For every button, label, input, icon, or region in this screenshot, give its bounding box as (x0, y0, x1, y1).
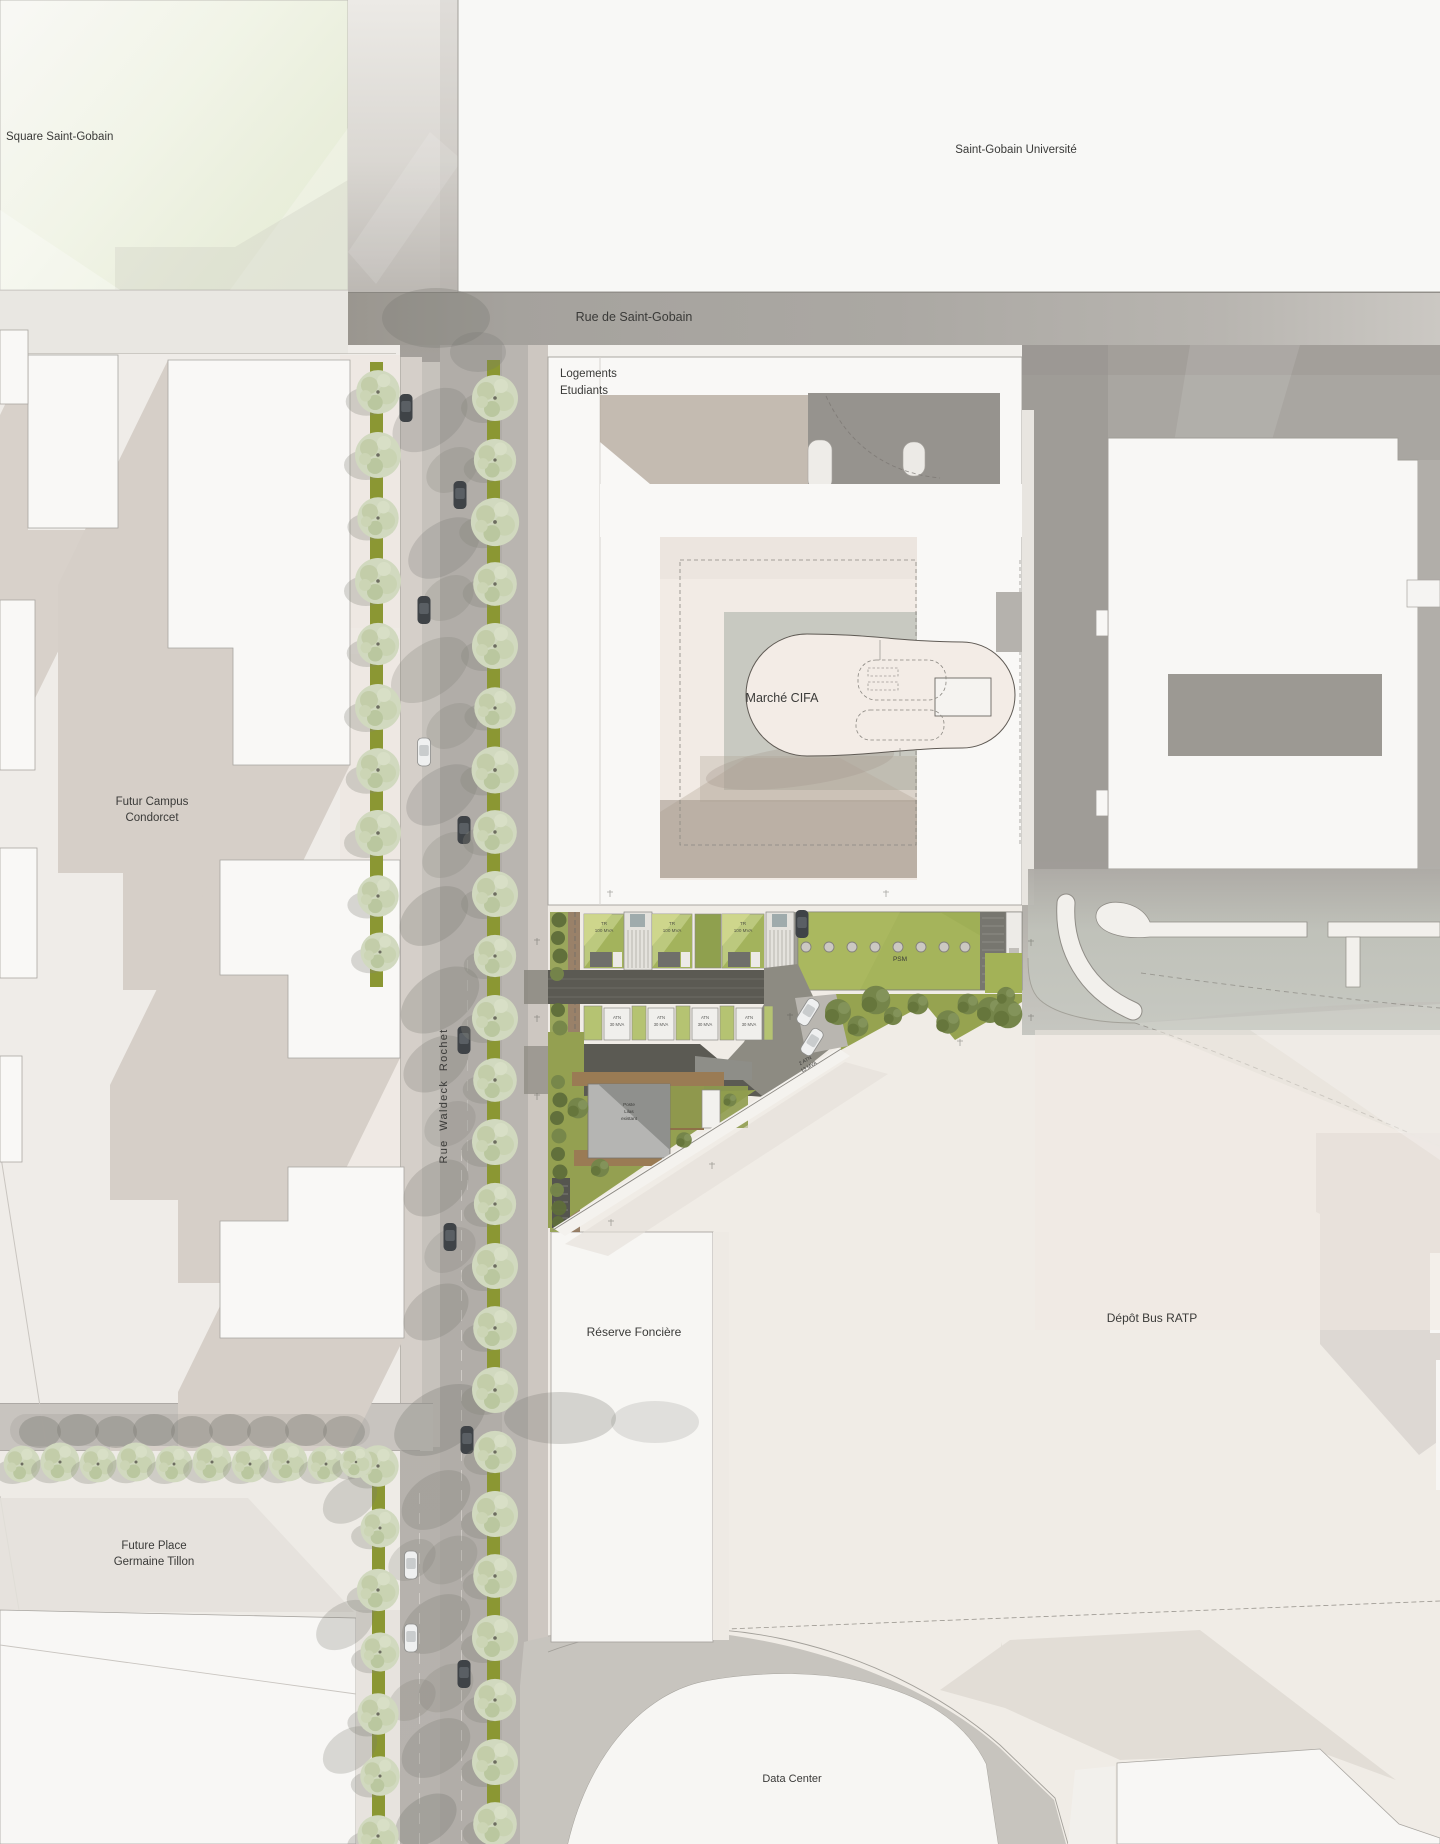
svg-text:30 MVA: 30 MVA (610, 1022, 625, 1027)
svg-text:TR: TR (740, 921, 747, 926)
svg-text:100 MVA: 100 MVA (663, 928, 682, 933)
svg-text:ATN: ATN (613, 1015, 621, 1020)
svg-text:Condorcet: Condorcet (125, 812, 179, 824)
svg-text:100 MVA: 100 MVA (595, 928, 614, 933)
svg-text:ATN: ATN (745, 1015, 753, 1020)
svg-text:Lilas: Lilas (624, 1109, 634, 1114)
svg-text:Rue Waldeck Rochet: Rue Waldeck Rochet (438, 1028, 450, 1163)
svg-text:Etudiants: Etudiants (560, 385, 608, 397)
svg-text:TR: TR (669, 921, 676, 926)
svg-text:existant: existant (621, 1116, 638, 1121)
svg-text:30 MVA: 30 MVA (654, 1022, 669, 1027)
svg-text:Dépôt Bus RATP: Dépôt Bus RATP (1107, 1311, 1197, 1325)
svg-text:Square Saint-Gobain: Square Saint-Gobain (6, 131, 113, 143)
svg-text:Poste: Poste (623, 1102, 635, 1107)
svg-text:Logements: Logements (560, 368, 617, 380)
svg-text:Futur Campus: Futur Campus (116, 796, 189, 808)
svg-text:Marché CIFA: Marché CIFA (746, 691, 820, 705)
svg-text:Rue de Saint-Gobain: Rue de Saint-Gobain (576, 310, 693, 324)
svg-text:30 MVA: 30 MVA (698, 1022, 713, 1027)
svg-text:ATN: ATN (657, 1015, 665, 1020)
svg-text:Réserve Foncière: Réserve Foncière (587, 1325, 682, 1339)
svg-text:30 MVA: 30 MVA (742, 1022, 757, 1027)
svg-text:Saint-Gobain Université: Saint-Gobain Université (955, 144, 1076, 156)
svg-text:PSM: PSM (893, 956, 907, 963)
svg-text:100 MVA: 100 MVA (734, 928, 753, 933)
svg-text:Data Center: Data Center (762, 1773, 822, 1785)
svg-text:TR: TR (601, 921, 608, 926)
svg-text:ATN: ATN (701, 1015, 709, 1020)
svg-text:Germaine Tillon: Germaine Tillon (114, 1556, 195, 1568)
svg-text:Future Place: Future Place (121, 1540, 186, 1552)
